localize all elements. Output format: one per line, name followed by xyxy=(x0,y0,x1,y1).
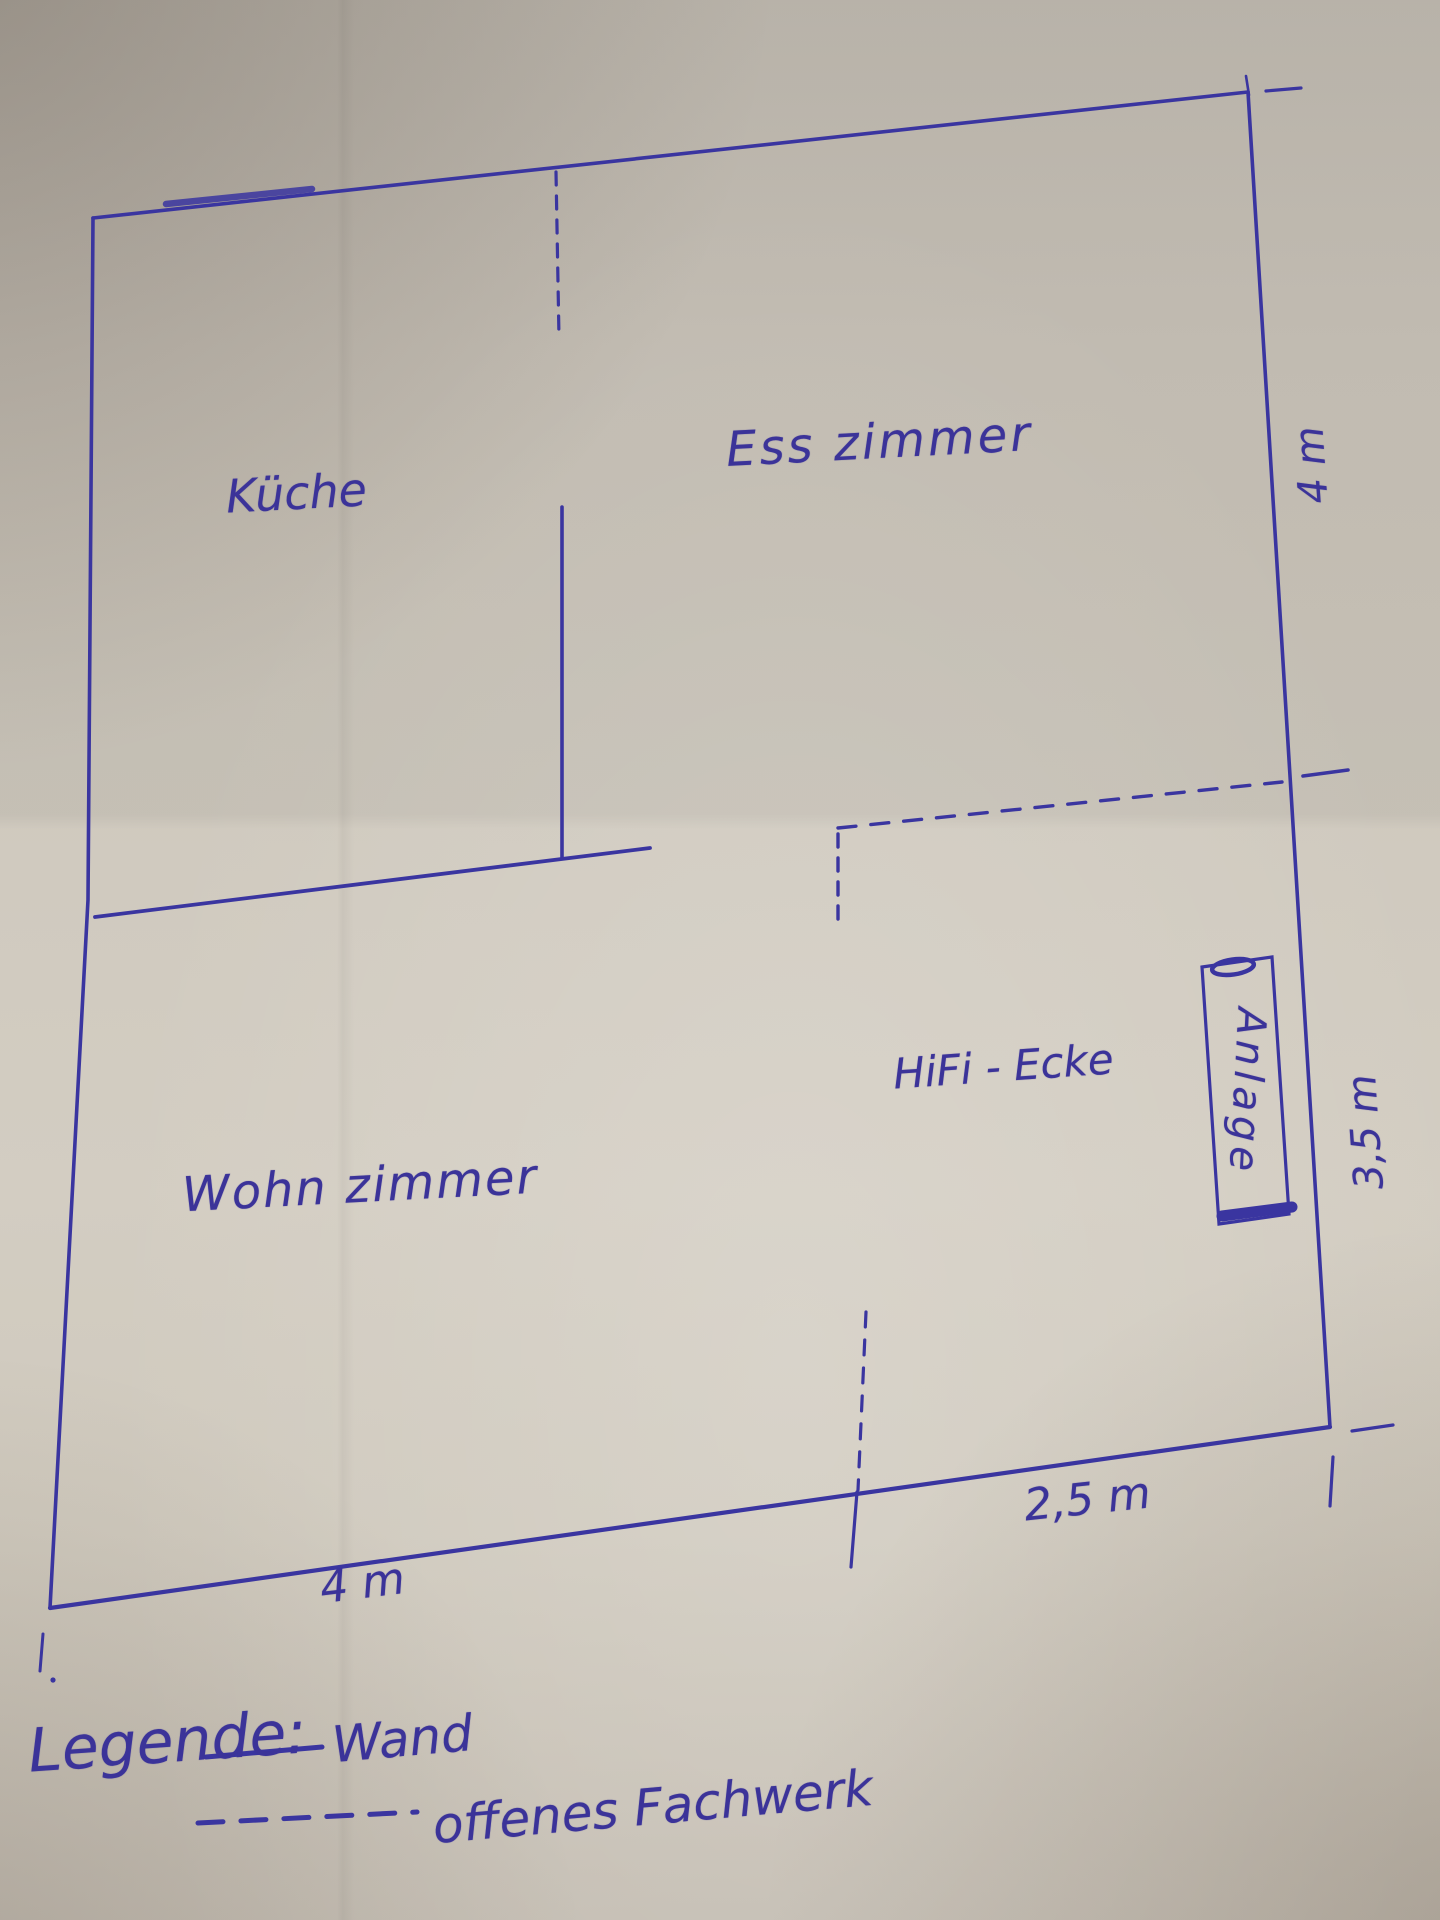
tick-right-middle xyxy=(1303,770,1348,776)
fachwerk-hifi-horizontal xyxy=(838,782,1282,828)
room-label-anlage: Anlage xyxy=(1223,1007,1272,1177)
legend-item-wand: Wand xyxy=(330,1708,475,1770)
room-label-kueche: Küche xyxy=(225,466,368,519)
tick-bottom-right-v xyxy=(1330,1457,1333,1506)
floorplan-drawing xyxy=(0,0,1440,1920)
wall-top xyxy=(93,92,1248,218)
fachwerk-top-vertical xyxy=(556,172,559,338)
wall-left xyxy=(50,218,93,1608)
dimension-right-upper: 4 m xyxy=(1289,425,1334,505)
tick-top-right-h xyxy=(1266,88,1301,91)
wall-right xyxy=(1248,92,1330,1427)
tick-bottom-middle xyxy=(851,1492,857,1567)
legend-heading: Legende: xyxy=(26,1702,308,1781)
dimension-bottom-right: 2,5 m xyxy=(1022,1471,1153,1528)
wall-kueche-horizontal xyxy=(95,848,650,917)
tick-bottom-right-h xyxy=(1352,1425,1393,1431)
anlage-top-scribble xyxy=(1211,957,1255,978)
legend-dashed-line xyxy=(198,1812,417,1823)
tick-bottom-left-dot xyxy=(50,1677,55,1682)
fachwerk-bottom-vertical xyxy=(858,1312,866,1490)
floorplan-photo: Küche Ess zimmer Wohn zimmer HiFi - Ecke… xyxy=(0,0,1440,1920)
tick-bottom-left xyxy=(40,1634,43,1671)
dimension-right-lower: 3,5 m xyxy=(1342,1073,1390,1191)
dimension-bottom-left: 4 m xyxy=(318,1557,408,1611)
